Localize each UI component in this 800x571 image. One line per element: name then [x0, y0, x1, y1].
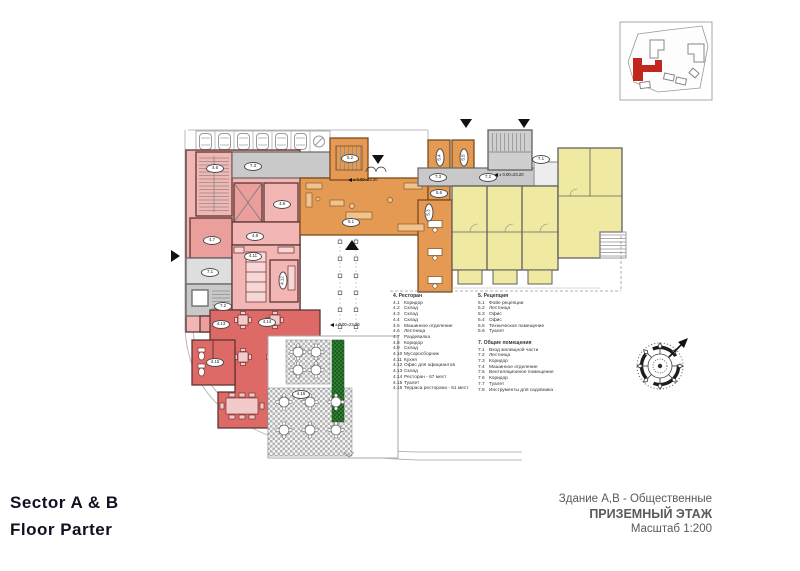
level-mark: ± 0.00=23.20	[348, 177, 378, 182]
drawing-sheet: 4.6 7.3 4.9 4.8 4.7 7.1 7.2 4.13 4.11 4.…	[0, 0, 800, 571]
room-label-4-6: 4.6	[206, 164, 224, 173]
drawing-info: Здание А,В - Общественные ПРИЗЕМНЫЙ ЭТАЖ…	[559, 492, 712, 537]
legend-item-number: 4.16	[393, 386, 404, 392]
level-mark: ± 0.00=23.20	[330, 322, 360, 327]
legend-item-label: Туалет	[489, 329, 504, 335]
legend-reception: 5. Рецепция 5.1 Фойе рецепции 5.2 Лестни…	[478, 294, 590, 335]
room-label-4-11: 4.11	[244, 252, 262, 261]
legend-heading: 4. Ресторан	[393, 294, 478, 300]
legend-heading: 5. Рецепция	[478, 294, 590, 300]
room-label-4-14: 4.14	[258, 318, 276, 327]
legend-common: 7. Общие помещения 7.1 Вход жилищной час…	[478, 341, 590, 393]
room-label-5-4: 5.4	[436, 149, 445, 167]
room-label-7-2-left: 7.2	[214, 302, 232, 311]
level-value: ± 0.00=23.20	[353, 177, 378, 182]
level-value: ± 0.00=23.20	[335, 322, 360, 327]
legend-item: 7.8 Инструменты для садовника	[478, 388, 590, 394]
room-label-4-12: 4.12	[279, 272, 288, 290]
legend-item-number: 7.8	[478, 388, 489, 394]
room-label-7-3-mid: 7.3	[429, 173, 447, 182]
floor-title: Floor Parter	[10, 516, 119, 543]
compass-icon	[635, 338, 688, 391]
legend-items: 4.1 Коридор 4.2 Склад 4.3 Склад 4.4 Скла…	[393, 301, 478, 392]
room-label-4-9: 4.9	[273, 200, 291, 209]
room-label-4-8: 4.8	[246, 232, 264, 241]
legend-item: 5.6 Туалет	[478, 329, 590, 335]
legend-restaurant: 4. Ресторан 4.1 Коридор 4.2 Склад 4.3 Ск…	[393, 294, 478, 392]
scale-label: Масштаб 1:200	[559, 522, 712, 537]
legend-column-restaurant: 4. Ресторан 4.1 Коридор 4.2 Склад 4.3 Ск…	[393, 294, 478, 398]
room-label-4-13: 4.13	[212, 320, 230, 329]
room-label-5-2: 5.2	[341, 154, 359, 163]
colonnade	[338, 238, 358, 334]
legend-item-label: Инструменты для садовника	[489, 388, 553, 394]
level-value: ± 0.00=23.20	[499, 172, 524, 177]
level-flag-icon	[494, 173, 498, 177]
room-label-5-1: 5.1	[342, 218, 360, 227]
legend-heading: 7. Общие помещения	[478, 341, 590, 347]
room-label-7-3-left: 7.3	[244, 162, 262, 171]
room-label-4-16: 4.16	[292, 390, 310, 399]
door-swing-icon	[366, 167, 386, 172]
legend-item-label: Терраса ресторана - 51 мест	[404, 386, 468, 392]
legend-item: 4.16 Терраса ресторана - 51 мест	[393, 386, 478, 392]
room-label-7-1-right: 7.1	[532, 155, 550, 164]
hedge-strip	[332, 340, 344, 422]
north-arrow-icon	[669, 338, 688, 357]
level-flag-icon	[348, 178, 352, 182]
legend-item-number: 5.6	[478, 329, 489, 335]
room-label-5-3: 5.3	[425, 204, 434, 222]
room-label-4-15: 4.15	[206, 358, 224, 367]
parking-row	[196, 131, 330, 152]
room-label-5-6: 5.6	[430, 189, 448, 198]
legend-items: 5.1 Фойе рецепции 5.2 Лестница 5.3 Офис …	[478, 301, 590, 335]
sheet-title: Sector A & B Floor Parter	[10, 489, 119, 543]
legend-items: 7.1 Вход жилищной части 7.2 Лестница 7.3…	[478, 348, 590, 394]
level-flag-icon	[330, 323, 334, 327]
level-mark: ± 0.00=23.20	[494, 172, 524, 177]
floor-name: ПРИЗЕМНЫЙ ЭТАЖ	[559, 507, 712, 522]
room-label-5-5: 5.5	[460, 149, 469, 167]
floor-plan	[0, 0, 800, 571]
terrace	[268, 336, 398, 458]
site-plan-inset	[620, 22, 712, 100]
legend-column-reception-common: 5. Рецепция 5.1 Фойе рецепции 5.2 Лестни…	[478, 294, 590, 399]
room-label-4-7: 4.7	[203, 236, 221, 245]
room-label-7-1-left: 7.1	[201, 268, 219, 277]
sector-title: Sector A & B	[10, 489, 119, 516]
building-name: Здание А,В - Общественные	[559, 492, 712, 507]
